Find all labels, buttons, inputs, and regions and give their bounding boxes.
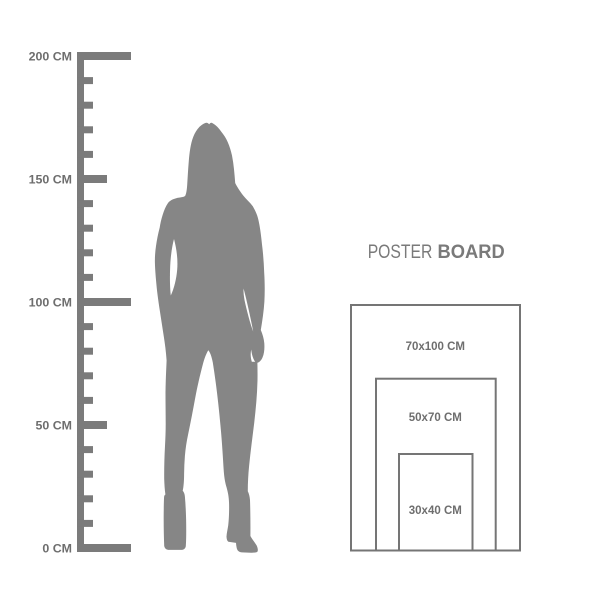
svg-text:30x40 CM: 30x40 CM: [409, 505, 462, 517]
svg-text:POSTER: POSTER: [368, 242, 433, 263]
svg-text:50 CM: 50 CM: [36, 419, 73, 433]
svg-text:200 CM: 200 CM: [29, 50, 72, 64]
svg-text:50x70 CM: 50x70 CM: [409, 412, 462, 424]
svg-text:BOARD: BOARD: [438, 242, 505, 263]
svg-text:150 CM: 150 CM: [29, 173, 72, 187]
svg-text:70x100 CM: 70x100 CM: [406, 341, 465, 353]
svg-text:100 CM: 100 CM: [29, 296, 72, 310]
svg-text:0 CM: 0 CM: [42, 542, 72, 556]
